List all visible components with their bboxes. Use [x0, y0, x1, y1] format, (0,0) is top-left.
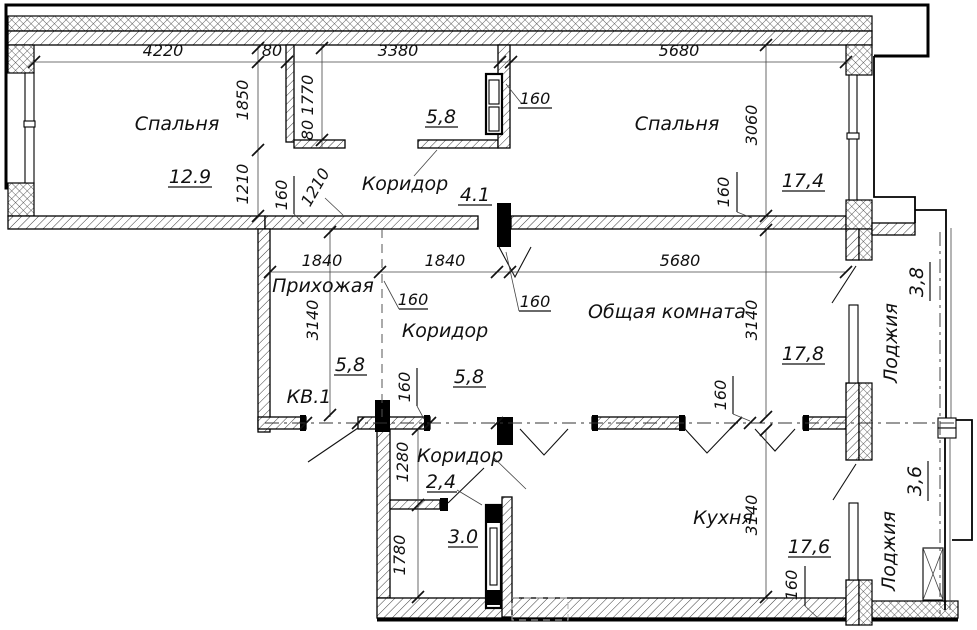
vent-shaft-top	[486, 74, 502, 134]
loggia-top-wall	[872, 223, 915, 235]
room-label-corridor-mid: Коридор	[402, 320, 488, 342]
duct-cap	[487, 590, 500, 605]
wall-seg	[859, 229, 872, 260]
area-loggia-top: 3,8	[906, 267, 928, 297]
wardrobe-wall-h	[294, 140, 345, 148]
common-top-wall	[511, 216, 846, 229]
duct-cap	[487, 506, 500, 523]
area-corridor-mid-right: 5,8	[454, 366, 484, 388]
dim-3060: 3060	[742, 105, 761, 146]
dim-4220: 4220	[143, 41, 184, 60]
duct-inner	[489, 80, 499, 104]
dim-1840b: 1840	[425, 251, 466, 270]
room-label-hallway: Прихожая	[272, 275, 374, 297]
wall-seg	[846, 580, 859, 625]
dim-1780: 1780	[390, 535, 409, 576]
hallway-left-wall	[258, 229, 270, 432]
dim-1840a: 1840	[302, 251, 343, 270]
area-loggia-bottom: 3,6	[904, 466, 926, 496]
bottom-wall	[377, 598, 846, 618]
top-wall-inner	[8, 31, 872, 45]
dim-160-kitchen: 160	[782, 570, 801, 601]
common-balcony-door-swing	[832, 266, 856, 303]
dim-1850: 1850	[233, 80, 252, 121]
shaft-wall	[502, 497, 512, 617]
corridor41-door-pillar	[497, 203, 511, 247]
entry-door-swing	[308, 428, 358, 462]
dim-160-hall: 160	[398, 290, 429, 309]
room-label-common: Общая комната	[588, 301, 746, 323]
common-door-b	[755, 429, 795, 451]
left-wall-top-block	[8, 45, 34, 73]
dim-160-common: 160	[711, 380, 730, 411]
dim-3140-common: 3140	[742, 300, 761, 341]
room-label-corridor-low: Коридор	[417, 445, 503, 467]
floor-plan-canvas: Спальня 12.9 5,8 Коридор 4.1 Спальня 17,…	[0, 0, 977, 630]
dim-5680-mid: 5680	[660, 251, 701, 270]
area-common: 17,8	[782, 343, 824, 365]
kitchen-balcony-door-swing	[833, 464, 856, 500]
duct-inner	[490, 528, 497, 585]
dim-1770: 1770	[298, 75, 317, 116]
dim-1210-niche: 1210	[297, 165, 334, 210]
area-corridor-low: 2,4	[426, 471, 456, 493]
right-wall-mid-block	[846, 200, 872, 229]
top-wall-outer	[8, 16, 872, 31]
corridor24-door-jamb	[440, 498, 448, 511]
dim-160-corridor: 160	[520, 292, 551, 311]
room-label-bedroom1: Спальня	[135, 113, 220, 135]
window-mullion	[847, 133, 859, 139]
window-mullion	[24, 121, 35, 127]
dim-1210: 1210	[233, 164, 252, 205]
lower-left-wall	[377, 417, 390, 598]
wall-seg	[846, 229, 859, 260]
dim-3380: 3380	[378, 41, 419, 60]
duct-inner	[489, 107, 499, 131]
room-label-loggia-bottom: Лоджия	[878, 511, 900, 592]
area-corridor41: 4.1	[460, 184, 490, 206]
kitchen-door	[520, 429, 568, 455]
room-label-loggia-top: Лоджия	[880, 303, 902, 384]
dim-80h: 80	[262, 41, 282, 60]
room-labels: Спальня 12.9 5,8 Коридор 4.1 Спальня 17,…	[135, 106, 928, 592]
kitchen-balcony-window	[849, 503, 858, 580]
apartment-number: КВ.1	[287, 386, 332, 408]
corridor41-bottom-wall	[265, 216, 478, 229]
vent-shaft-kitchen	[486, 497, 512, 617]
right-wall-top-block	[846, 45, 872, 75]
room-label-corridor-top: Коридор	[362, 173, 448, 195]
dim-160-bedroom2: 160	[714, 177, 733, 208]
glazing-jamb	[938, 428, 956, 438]
exterior-walls	[8, 16, 958, 620]
dim-1280: 1280	[393, 442, 412, 483]
common-balcony-window	[849, 305, 858, 383]
wall-seg	[859, 580, 872, 625]
area-kitchen: 17,6	[788, 536, 830, 558]
corridor41-door	[499, 247, 531, 277]
corridor-top-wall	[418, 140, 498, 148]
dim-3140-kitchen: 3140	[742, 495, 761, 536]
left-wall-bottom-block	[8, 183, 34, 216]
area-bedroom2: 17,4	[782, 170, 824, 192]
area-corridor-low2: 3.0	[448, 526, 478, 548]
common-door-a	[685, 429, 730, 453]
dim-160-niche: 160	[272, 180, 291, 211]
dim-3140-hall: 3140	[303, 300, 322, 341]
dim-160-shaft: 160	[520, 89, 551, 108]
dim-5680-top: 5680	[659, 41, 700, 60]
wall-seg	[859, 383, 872, 460]
room-label-bedroom2: Спальня	[635, 113, 720, 135]
dim-80v: 80	[298, 120, 317, 140]
dim-160-door: 160	[395, 372, 414, 403]
wall-seg	[846, 383, 859, 460]
area-bedroom1: 12.9	[169, 166, 211, 188]
bedroom1-bottom-wall	[8, 216, 265, 229]
area-corridor-mid-left: 5,8	[335, 354, 365, 376]
bedroom1-window	[25, 73, 34, 183]
area-corridor-top: 5,8	[426, 106, 456, 128]
